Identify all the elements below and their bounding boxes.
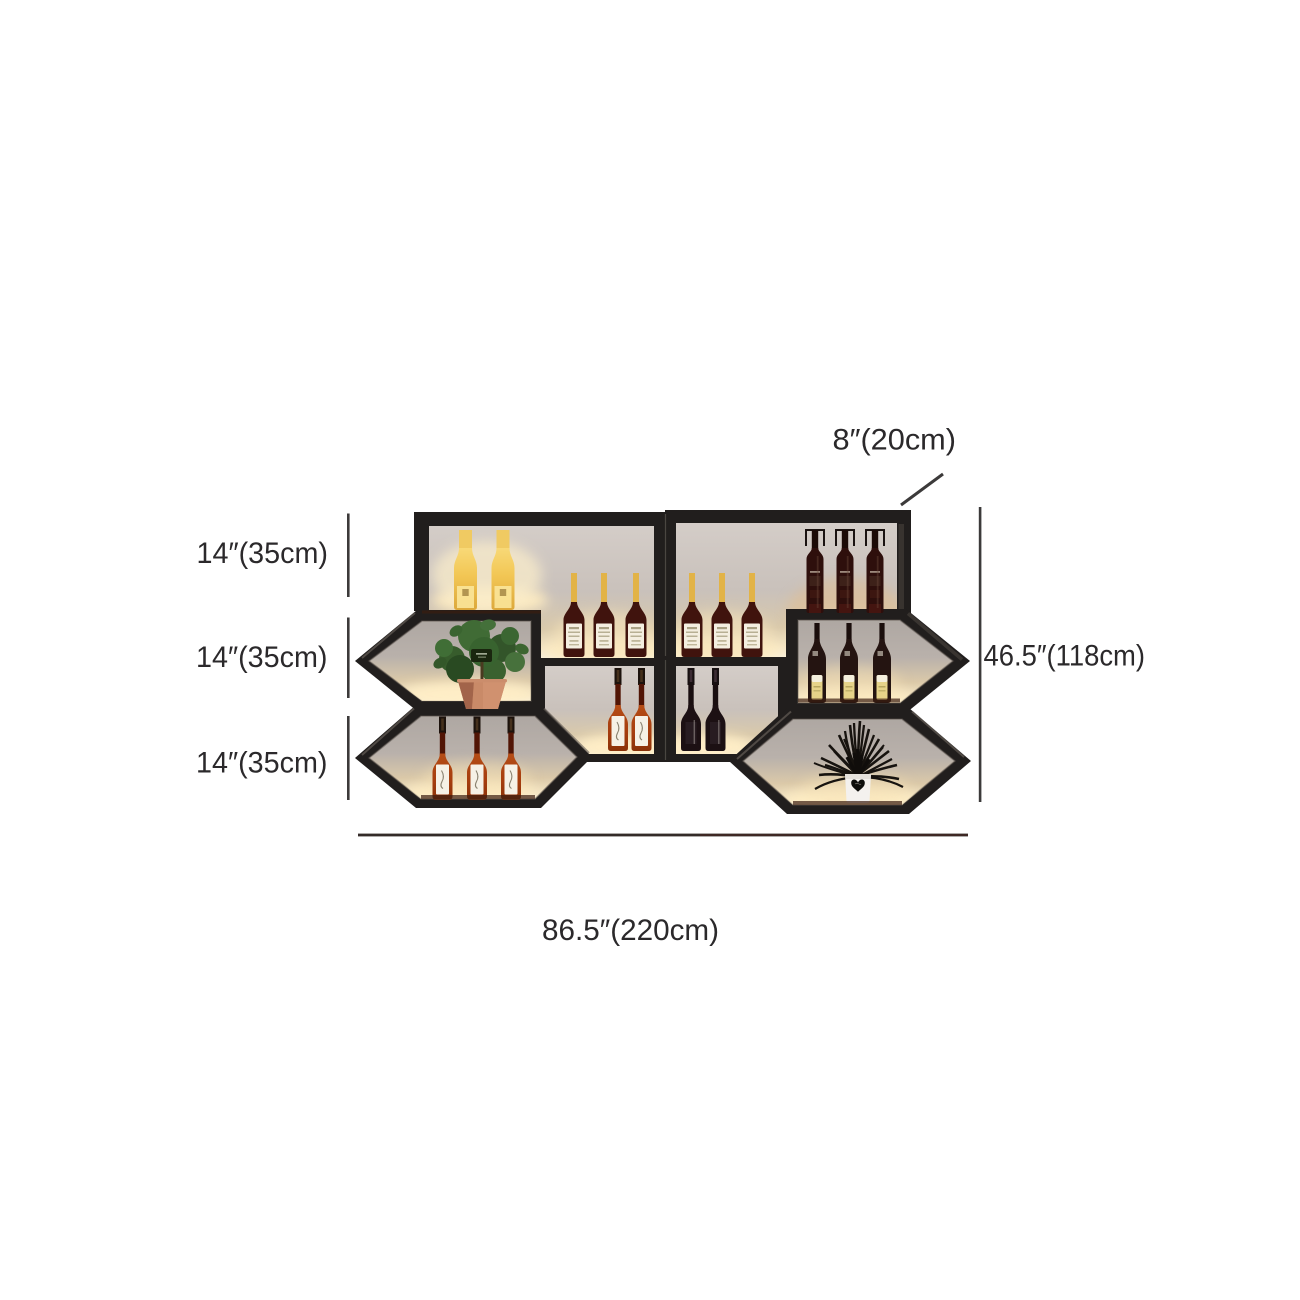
svg-text:14″(35cm): 14″(35cm) [196,642,328,674]
svg-text:14″(35cm): 14″(35cm) [197,538,329,570]
svg-text:14″(35cm): 14″(35cm) [196,748,328,780]
svg-text:8″(20cm): 8″(20cm) [833,425,957,457]
svg-text:86.5″(220cm): 86.5″(220cm) [542,915,719,947]
svg-text:46.5″(118cm): 46.5″(118cm) [984,641,1146,673]
